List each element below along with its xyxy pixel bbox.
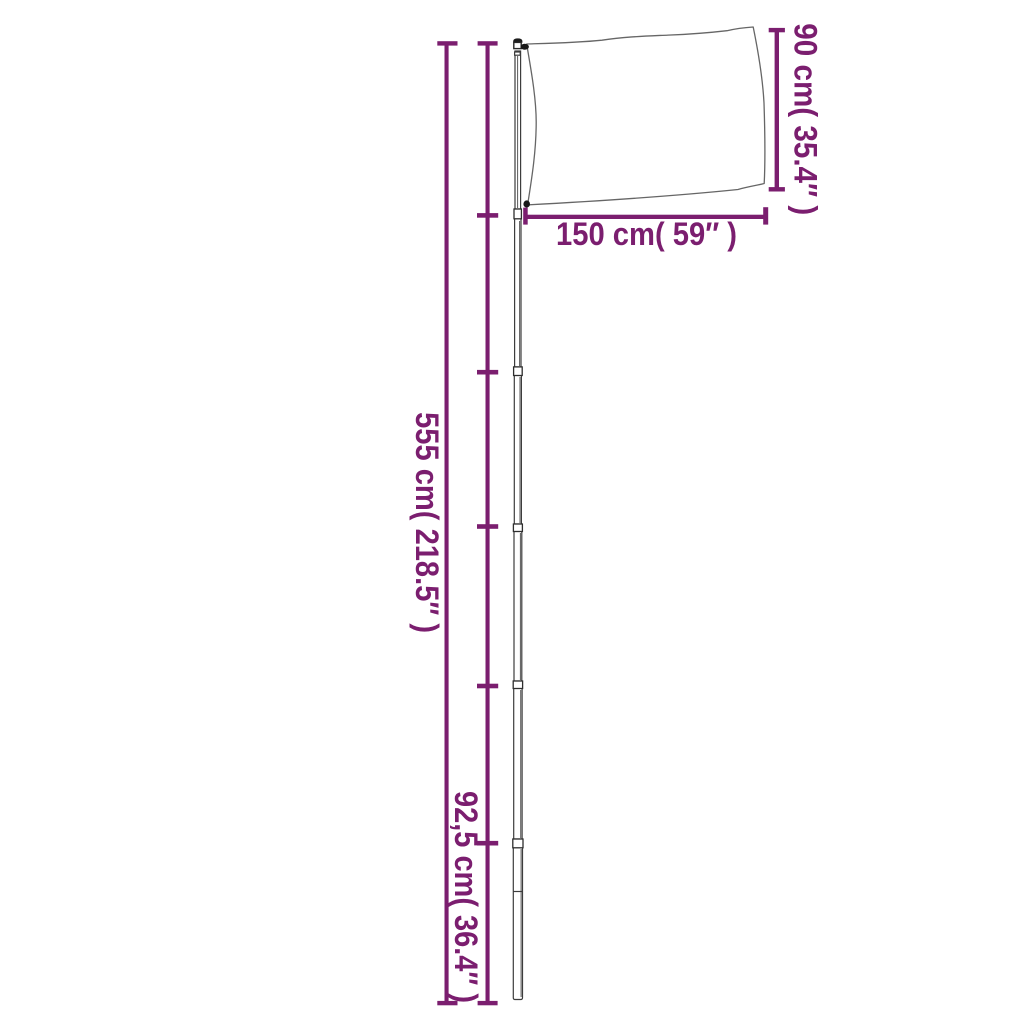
svg-text:150 cm( 59″ ): 150 cm( 59″ ): [556, 216, 737, 252]
svg-text:555 cm( 218.5″ ): 555 cm( 218.5″ ): [409, 412, 445, 633]
svg-text:92,5 cm( 36.4″ ): 92,5 cm( 36.4″ ): [448, 791, 484, 1003]
svg-text:90 cm( 35.4″ ): 90 cm( 35.4″ ): [788, 23, 824, 215]
